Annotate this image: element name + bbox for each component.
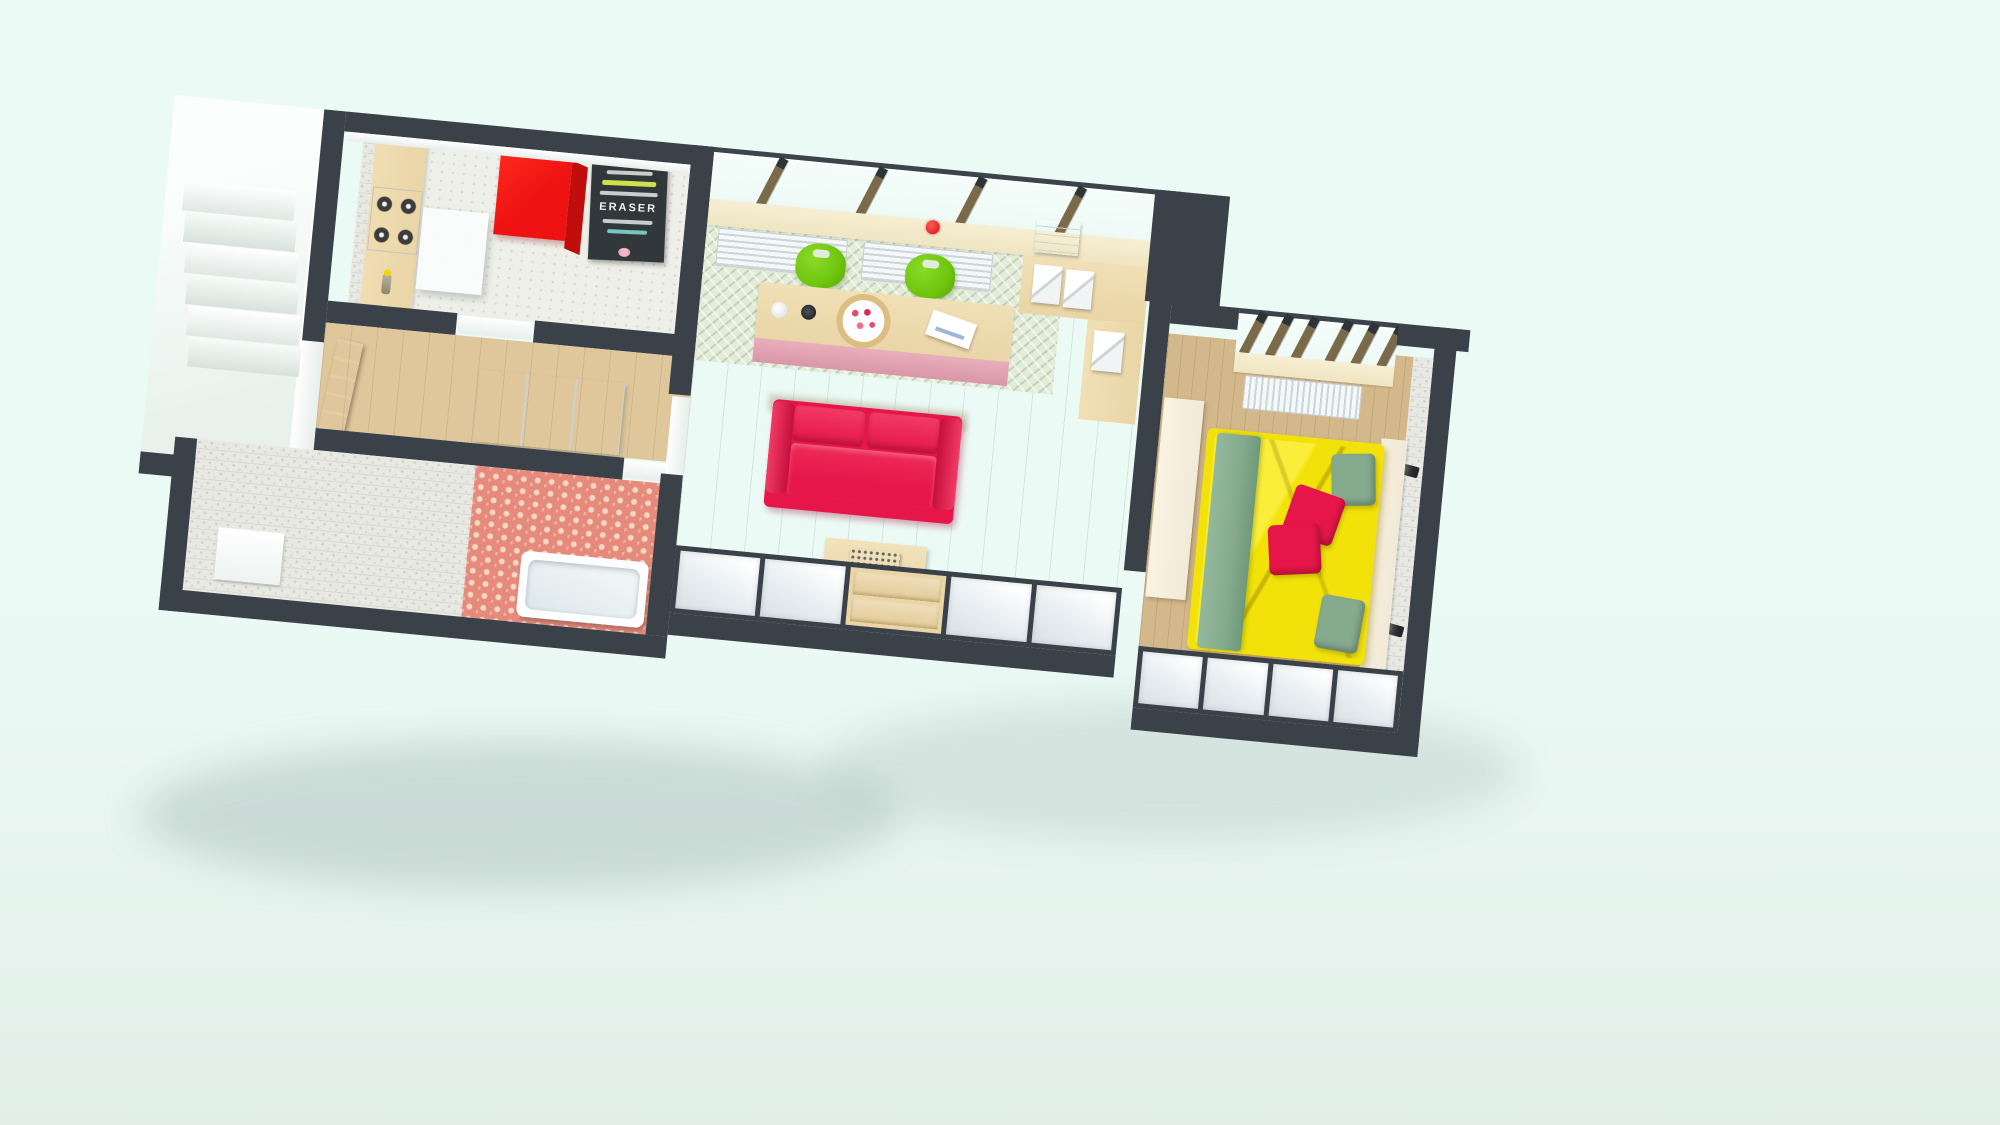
shelf-cubby: [1333, 670, 1398, 728]
shelf-cubby: [1138, 651, 1203, 709]
retro-radio: [1034, 218, 1081, 256]
chalk-line: [602, 219, 652, 225]
drawer-unit: [845, 567, 947, 634]
coffee-cup: [770, 301, 787, 318]
bath-mat: [214, 527, 285, 585]
mug: [800, 304, 816, 320]
sofa-back-cushion: [866, 412, 940, 455]
window-mullion: [954, 176, 987, 228]
chalk-line: [600, 191, 658, 198]
shelf-cubby: [1203, 658, 1268, 716]
gas-stove: [367, 186, 423, 254]
berry-plate: [841, 298, 887, 344]
red-sofa: [763, 399, 962, 525]
oil-bottle: [381, 274, 392, 295]
shelf-cubby: [675, 551, 761, 616]
window-mullion: [1325, 319, 1354, 364]
refrigerator: [493, 151, 573, 242]
envelope-address-line: [935, 326, 965, 340]
paper-tray: [1091, 330, 1125, 373]
shelf-cubby: [1031, 585, 1117, 650]
window-mullion: [1350, 322, 1379, 367]
bathtub: [516, 550, 650, 628]
chalkboard-poster: ERASER: [588, 157, 668, 262]
window-mullion: [1265, 313, 1294, 358]
chalk-line: [607, 170, 653, 176]
paper-tray: [1031, 264, 1063, 305]
chair-handle-hole: [812, 249, 830, 259]
apartment-scene: ERASER: [121, 95, 1469, 777]
chalk-teal-line: [607, 229, 647, 235]
drawer: [852, 571, 942, 602]
chair-handle-hole: [922, 259, 940, 269]
floorplan-canvas: ERASER: [0, 0, 2000, 1125]
bathtub-basin: [524, 559, 640, 620]
chalk-word: ERASER: [596, 201, 660, 216]
wall: [1170, 301, 1240, 329]
drawer: [849, 598, 939, 629]
red-pillow: [1268, 523, 1322, 575]
window-mullion: [1239, 311, 1268, 356]
chalk-highlight-line: [602, 180, 656, 187]
sofa-back-cushion: [792, 405, 866, 448]
staircase: [167, 180, 296, 376]
room-kitchen: ERASER: [326, 111, 715, 357]
ground-shadow: [140, 740, 900, 890]
room-living: [668, 147, 1161, 678]
shelf-cubby: [946, 577, 1032, 642]
room-bedroom: [1132, 301, 1459, 747]
hallway-closet: [473, 370, 625, 456]
window-mullion: [855, 166, 888, 218]
bottle-cap: [384, 269, 392, 277]
double-bed: [1187, 428, 1385, 666]
envelope: [925, 310, 977, 350]
extractor-hood: [416, 207, 490, 295]
window-mullion: [755, 157, 788, 209]
wall-corner-block: [1145, 189, 1230, 308]
paper-tray: [1063, 269, 1095, 310]
window-mullion: [1291, 316, 1320, 361]
chalk-flower: [618, 248, 630, 258]
shelf-cubby: [760, 559, 846, 624]
shelf-cubby: [1268, 664, 1333, 722]
